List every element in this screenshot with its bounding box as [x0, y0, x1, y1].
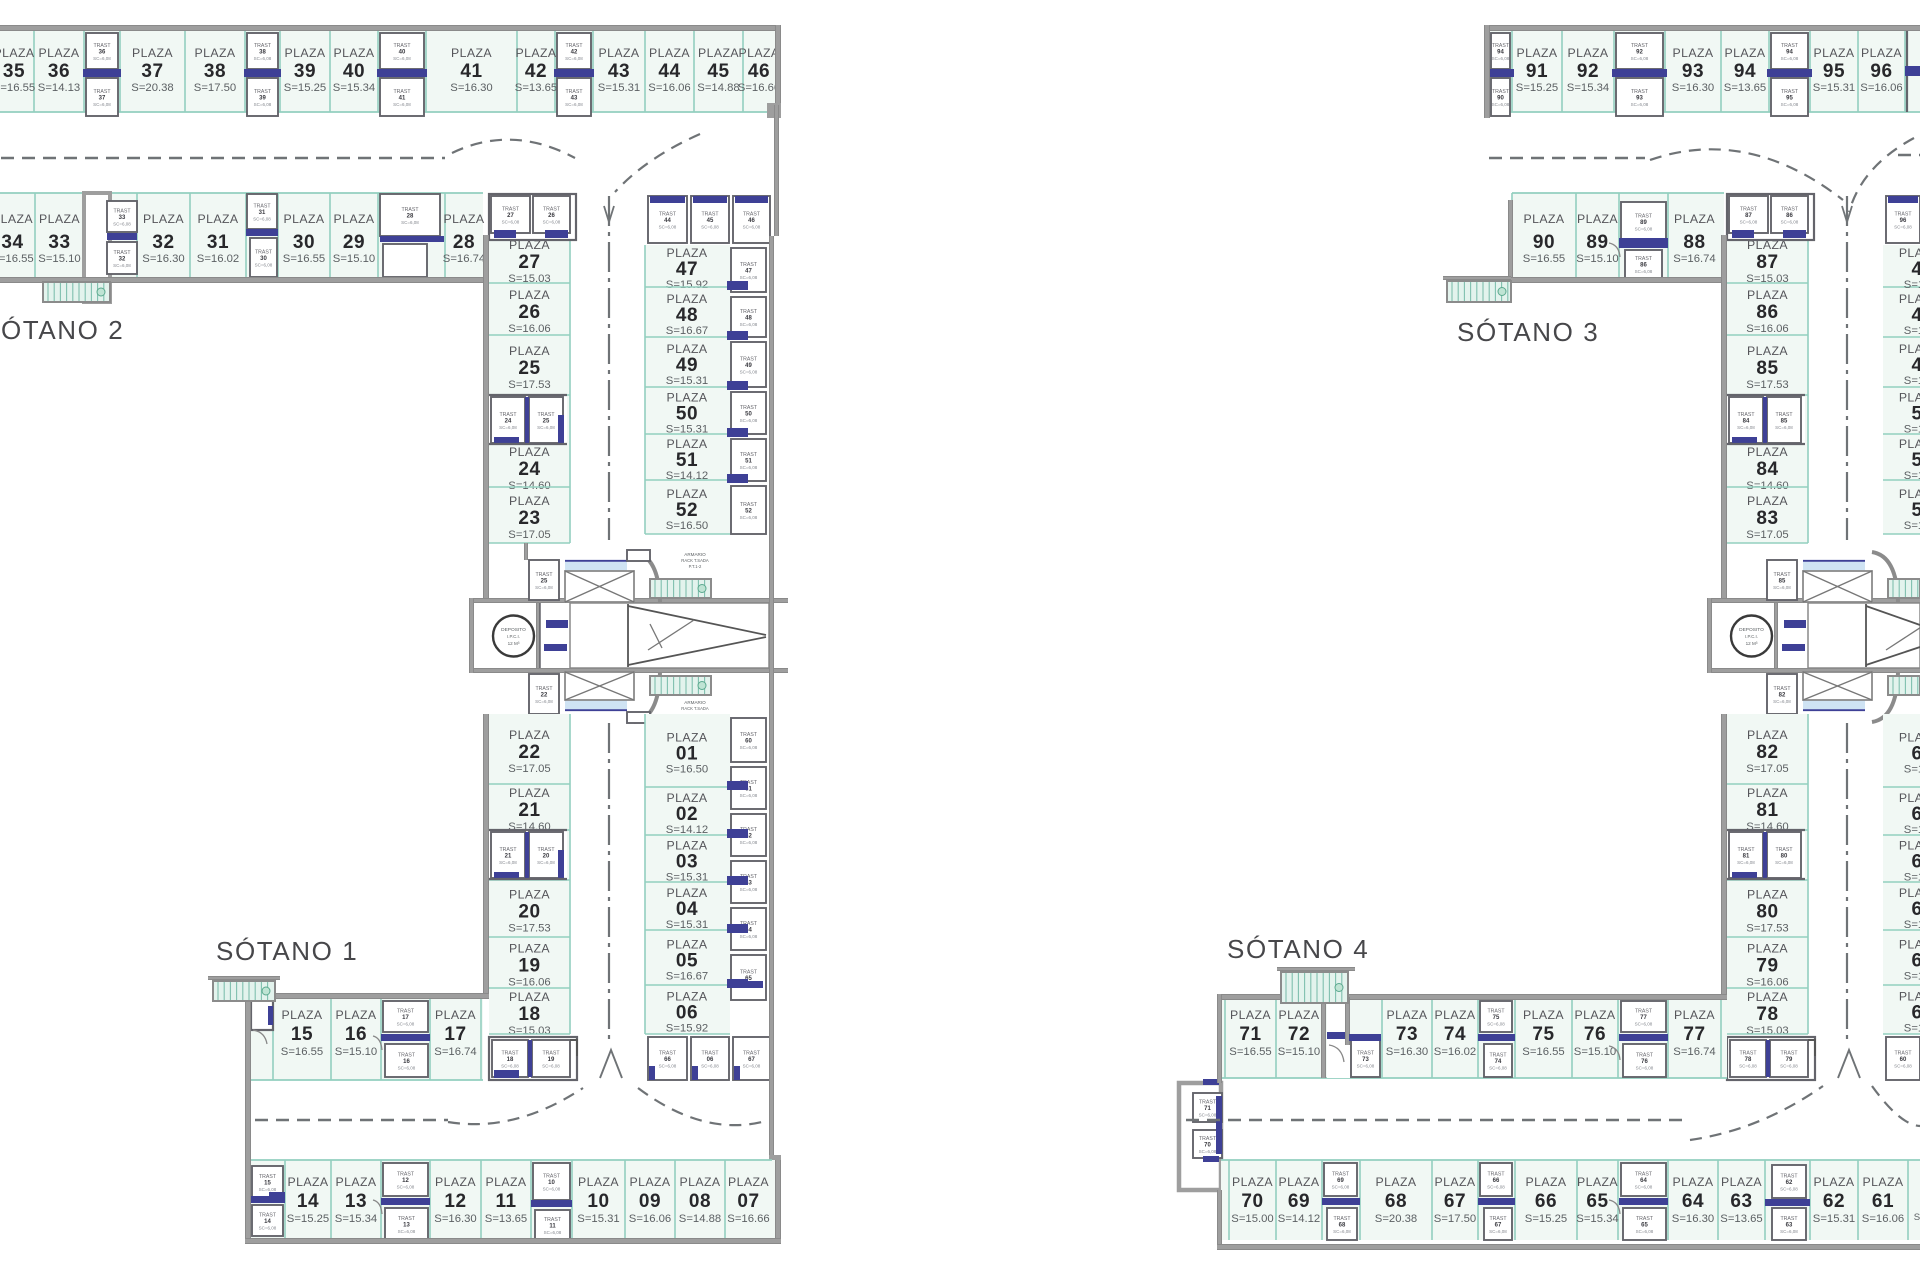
svg-text:08: 08 [689, 1191, 711, 1212]
svg-text:S=16.06: S=16.06 [508, 323, 550, 335]
svg-text:S=16.30: S=16.30 [1386, 1046, 1428, 1058]
svg-text:28: 28 [453, 232, 475, 253]
svg-text:TRAST: TRAST [502, 207, 520, 213]
svg-text:SC=6,08: SC=6,08 [743, 225, 761, 230]
svg-text:S=17.05: S=17.05 [1746, 529, 1788, 541]
svg-text:39: 39 [259, 96, 266, 102]
svg-text:SC=6,08: SC=6,08 [255, 263, 273, 268]
svg-text:TRAST: TRAST [537, 847, 555, 853]
svg-text:TRAST: TRAST [740, 732, 758, 738]
svg-text:SC=6,08: SC=6,08 [659, 225, 677, 230]
svg-text:PLAZA: PLAZA [284, 212, 325, 226]
svg-text:35: 35 [3, 61, 25, 82]
svg-text:SC=6,08: SC=6,08 [1737, 860, 1755, 865]
svg-text:S=1: S=1 [1904, 872, 1920, 884]
svg-text:PLAZA: PLAZA [680, 1175, 721, 1189]
svg-text:S=1: S=1 [1904, 764, 1920, 776]
svg-text:TRAST: TRAST [1631, 43, 1649, 49]
svg-text:S=15.34: S=15.34 [1576, 1213, 1618, 1225]
svg-text:S=15.25: S=15.25 [1525, 1213, 1567, 1225]
svg-text:25: 25 [518, 358, 540, 379]
svg-text:S=15.31: S=15.31 [1813, 1213, 1855, 1225]
svg-text:PLAZA: PLAZA [667, 990, 708, 1004]
svg-text:S=17.05: S=17.05 [508, 529, 550, 541]
svg-text:SC=6,08: SC=6,08 [740, 793, 758, 798]
svg-text:PLAZA: PLAZA [509, 888, 550, 902]
svg-text:TRAST: TRAST [659, 1051, 677, 1057]
svg-text:PLAZ: PLAZ [1899, 990, 1920, 1004]
svg-text:SC=6,08: SC=6,08 [543, 1187, 561, 1192]
svg-text:PLAZA: PLAZA [1376, 1175, 1417, 1189]
svg-text:S=15.03: S=15.03 [1746, 1025, 1788, 1037]
svg-text:I.P.C.I.: I.P.C.I. [1745, 634, 1758, 639]
svg-text:6: 6 [1911, 804, 1920, 825]
svg-text:90: 90 [1497, 96, 1504, 102]
svg-text:PLAZ: PLAZ [1899, 292, 1920, 306]
svg-text:SC=6,08: SC=6,08 [397, 1185, 415, 1190]
svg-text:TRAST: TRAST [740, 502, 758, 508]
svg-text:TRAST: TRAST [740, 405, 758, 411]
svg-text:PLAZA: PLAZA [1721, 1175, 1762, 1189]
svg-text:DEPOSITO: DEPOSITO [501, 627, 526, 633]
svg-text:TRAST: TRAST [397, 1009, 415, 1015]
svg-text:TRAST: TRAST [1199, 1100, 1217, 1106]
svg-text:S=17.53: S=17.53 [1746, 923, 1788, 935]
svg-text:5: 5 [1911, 500, 1920, 521]
svg-text:S=20.38: S=20.38 [1375, 1213, 1417, 1225]
svg-text:85: 85 [1756, 358, 1778, 379]
svg-text:SC=6,08: SC=6,08 [537, 425, 555, 430]
svg-text:SC=6,08: SC=6,08 [543, 220, 561, 225]
svg-text:PLAZA: PLAZA [739, 46, 780, 60]
svg-text:SC=6,08: SC=6,08 [537, 860, 555, 865]
svg-text:TRAST: TRAST [1487, 1009, 1505, 1015]
svg-text:SC=6,08: SC=6,08 [1357, 1064, 1375, 1069]
svg-text:PLAZA: PLAZA [336, 1008, 377, 1022]
svg-text:TRAST: TRAST [743, 1051, 761, 1057]
svg-text:06: 06 [707, 1057, 714, 1063]
svg-text:S=17.05: S=17.05 [508, 763, 550, 775]
svg-text:SC=6,08: SC=6,08 [393, 56, 411, 61]
svg-text:PLAZA: PLAZA [1279, 1175, 1320, 1189]
svg-text:PLAZA: PLAZA [1575, 1008, 1616, 1022]
svg-text:S=15.31: S=15.31 [1813, 82, 1855, 94]
svg-text:TRAST: TRAST [1739, 1051, 1757, 1057]
svg-text:47: 47 [676, 259, 698, 280]
svg-text:PLAZA: PLAZA [667, 791, 708, 805]
svg-text:89: 89 [1586, 232, 1608, 253]
svg-text:51: 51 [745, 459, 752, 465]
svg-text:TRAST: TRAST [93, 43, 111, 49]
svg-text:S=16.55: S=16.55 [0, 82, 35, 94]
svg-text:TRAST: TRAST [1636, 1216, 1654, 1222]
svg-text:PLAZA: PLAZA [1725, 46, 1766, 60]
svg-text:SC=6,08: SC=6,08 [1739, 1064, 1757, 1069]
svg-text:SC=6,08: SC=6,08 [740, 370, 758, 375]
svg-text:SC=6,08: SC=6,08 [1199, 1149, 1217, 1154]
svg-text:TRAST: TRAST [113, 250, 131, 256]
svg-text:S=15.03: S=15.03 [508, 1025, 550, 1037]
svg-text:SC=6,08: SC=6,08 [1780, 1187, 1798, 1192]
svg-text:S=16.30: S=16.30 [450, 82, 492, 94]
svg-text:25: 25 [543, 419, 550, 425]
svg-text:30: 30 [293, 232, 315, 253]
svg-text:SC=6,08: SC=6,08 [499, 860, 517, 865]
svg-text:SC=6,08: SC=6,08 [499, 425, 517, 430]
svg-text:SC=6,08: SC=6,08 [1635, 269, 1653, 274]
svg-text:S=16.67: S=16.67 [666, 325, 708, 337]
svg-text:PLAZA: PLAZA [198, 212, 239, 226]
svg-text:PLAZA: PLAZA [1747, 728, 1788, 742]
svg-text:PLAZA: PLAZA [0, 212, 33, 226]
svg-text:PLAZA: PLAZA [509, 344, 550, 358]
svg-text:S=16.55: S=16.55 [1229, 1046, 1271, 1058]
svg-text:96: 96 [1870, 61, 1892, 82]
svg-text:S=1: S=1 [1904, 520, 1920, 532]
svg-text:SC=6,08: SC=6,08 [1489, 1066, 1507, 1071]
svg-text:S=16.06: S=16.06 [629, 1213, 671, 1225]
svg-text:42: 42 [525, 61, 547, 82]
svg-text:S=13.65: S=13.65 [515, 82, 557, 94]
svg-text:SC=6,08: SC=6,08 [1894, 1064, 1912, 1069]
svg-text:S=15.25: S=15.25 [1516, 82, 1558, 94]
svg-text:27: 27 [518, 252, 540, 273]
svg-text:PLAZ: PLAZ [1899, 886, 1920, 900]
svg-text:79: 79 [1756, 956, 1778, 977]
svg-text:25: 25 [541, 579, 548, 585]
svg-text:68: 68 [1385, 1191, 1407, 1212]
svg-text:PLAZA: PLAZA [1863, 1175, 1904, 1189]
svg-text:PLAZA: PLAZA [667, 839, 708, 853]
svg-text:S=15.10: S=15.10 [38, 253, 80, 265]
svg-text:S=1: S=1 [1904, 424, 1920, 436]
svg-text:SC=6,08: SC=6,08 [740, 745, 758, 750]
svg-text:16: 16 [403, 1059, 410, 1065]
svg-text:TRAST: TRAST [1332, 1172, 1350, 1178]
svg-text:TRAST: TRAST [544, 1217, 562, 1223]
svg-text:PLAZA: PLAZA [509, 494, 550, 508]
svg-text:I.P.C.I.: I.P.C.I. [507, 634, 520, 639]
svg-text:63: 63 [1786, 1223, 1793, 1229]
svg-text:TRAST: TRAST [565, 43, 583, 49]
svg-text:5: 5 [1911, 404, 1920, 425]
svg-text:20: 20 [543, 854, 550, 860]
svg-text:5: 5 [1911, 450, 1920, 471]
svg-text:SC=6,08: SC=6,08 [254, 56, 272, 61]
svg-text:TRAST: TRAST [501, 1051, 519, 1057]
svg-text:TRAST: TRAST [255, 250, 273, 256]
svg-text:PLAZA: PLAZA [282, 1008, 323, 1022]
svg-text:62: 62 [1786, 1180, 1793, 1186]
svg-text:33: 33 [48, 232, 70, 253]
svg-text:SC=6,08: SC=6,08 [1773, 585, 1791, 590]
svg-text:63: 63 [1730, 1191, 1752, 1212]
svg-text:TRAST: TRAST [543, 207, 561, 213]
svg-text:69: 69 [1337, 1178, 1344, 1184]
svg-text:45: 45 [707, 218, 714, 224]
svg-text:SC=6,08: SC=6,08 [397, 1022, 415, 1027]
svg-text:PLAZA: PLAZA [1747, 942, 1788, 956]
svg-text:SC=6,08: SC=6,08 [1631, 102, 1649, 107]
svg-text:12: 12 [444, 1191, 466, 1212]
svg-text:TRAST: TRAST [259, 1213, 277, 1219]
svg-text:S=14.88: S=14.88 [697, 82, 739, 94]
svg-text:TRAST: TRAST [1489, 1216, 1507, 1222]
svg-text:PLAZA: PLAZA [39, 212, 80, 226]
svg-text:DEPOSITO: DEPOSITO [1739, 627, 1764, 633]
svg-text:TRAST: TRAST [1775, 847, 1793, 853]
svg-text:10: 10 [548, 1180, 555, 1186]
svg-text:86: 86 [1756, 302, 1778, 323]
svg-text:SC=6,08: SC=6,08 [544, 1230, 562, 1235]
svg-text:30: 30 [260, 256, 267, 262]
svg-text:PLAZA: PLAZA [1577, 1175, 1618, 1189]
svg-text:S=16.06: S=16.06 [1862, 1213, 1904, 1225]
svg-text:69: 69 [1288, 1191, 1310, 1212]
svg-text:85: 85 [1781, 419, 1788, 425]
svg-text:45: 45 [707, 61, 729, 82]
svg-text:50: 50 [676, 404, 698, 425]
svg-text:SC=6,08: SC=6,08 [535, 699, 553, 704]
svg-text:SC=6,08: SC=6,08 [1332, 1185, 1350, 1190]
svg-text:PLAZA: PLAZA [599, 46, 640, 60]
svg-text:S=15.10: S=15.10 [1576, 253, 1618, 265]
svg-text:S=16.55: S=16.55 [0, 253, 34, 265]
svg-text:SC=6,08: SC=6,08 [565, 102, 583, 107]
svg-text:TRAST: TRAST [740, 452, 758, 458]
svg-text:PLAZA: PLAZA [667, 731, 708, 745]
svg-text:S=16.30: S=16.30 [1672, 82, 1714, 94]
svg-text:PLAZA: PLAZA [728, 1175, 769, 1189]
svg-text:90: 90 [1533, 232, 1555, 253]
svg-text:66: 66 [1535, 1191, 1557, 1212]
svg-text:91: 91 [1526, 61, 1548, 82]
svg-text:48: 48 [745, 316, 752, 322]
svg-text:03: 03 [676, 852, 698, 873]
svg-text:20: 20 [518, 902, 540, 923]
svg-text:62: 62 [1823, 1191, 1845, 1212]
svg-text:S=17.53: S=17.53 [508, 923, 550, 935]
svg-text:S=15.25: S=15.25 [287, 1213, 329, 1225]
svg-text:PLAZA: PLAZA [1747, 494, 1788, 508]
svg-text:TRAST: TRAST [1199, 1136, 1217, 1142]
svg-text:SÓTANO 3: SÓTANO 3 [1457, 317, 1599, 347]
svg-text:TRAST: TRAST [1333, 1216, 1351, 1222]
svg-text:47: 47 [745, 269, 752, 275]
svg-text:SC=6,08: SC=6,08 [1780, 1064, 1798, 1069]
svg-text:87: 87 [1745, 213, 1752, 219]
svg-text:SC=6,08: SC=6,08 [259, 1187, 277, 1192]
svg-text:94: 94 [1734, 61, 1756, 82]
svg-text:72: 72 [1288, 1024, 1310, 1045]
svg-text:PLAZA: PLAZA [667, 437, 708, 451]
svg-text:PLAZ: PLAZ [1899, 391, 1920, 405]
svg-text:19: 19 [548, 1057, 555, 1063]
svg-text:66: 66 [664, 1057, 671, 1063]
svg-text:PLAZA: PLAZA [509, 942, 550, 956]
svg-text:S=14.12: S=14.12 [1278, 1213, 1320, 1225]
svg-text:93: 93 [1682, 61, 1704, 82]
svg-text:PLAZA: PLAZA [1814, 46, 1855, 60]
svg-text:94: 94 [1786, 50, 1793, 56]
svg-text:18: 18 [507, 1057, 514, 1063]
svg-text:22: 22 [518, 742, 540, 763]
svg-text:74: 74 [1495, 1059, 1502, 1065]
svg-text:S=16.06: S=16.06 [1746, 977, 1788, 989]
svg-text:29: 29 [343, 232, 365, 253]
svg-text:S=16.67: S=16.67 [666, 971, 708, 983]
svg-text:SC=6,08: SC=6,08 [740, 465, 758, 470]
svg-text:09: 09 [639, 1191, 661, 1212]
svg-text:01: 01 [676, 744, 698, 765]
svg-text:SC=6,08: SC=6,08 [740, 887, 758, 892]
svg-text:PLAZA: PLAZA [334, 212, 375, 226]
svg-text:S: S [1914, 1212, 1920, 1223]
svg-text:S=16.74: S=16.74 [434, 1046, 476, 1058]
svg-text:6: 6 [1911, 1003, 1920, 1024]
svg-text:TRAST: TRAST [740, 357, 758, 363]
svg-text:12 M³: 12 M³ [508, 641, 520, 646]
svg-text:SC=6,08: SC=6,08 [1737, 425, 1755, 430]
svg-text:37: 37 [141, 61, 163, 82]
svg-text:S=15.10: S=15.10 [1574, 1046, 1616, 1058]
svg-text:S=14.13: S=14.13 [38, 82, 80, 94]
svg-text:94: 94 [1497, 50, 1504, 56]
svg-text:SC=6,08: SC=6,08 [398, 1066, 416, 1071]
svg-text:PLAZA: PLAZA [667, 246, 708, 260]
svg-text:26: 26 [518, 302, 540, 323]
svg-text:4: 4 [1911, 259, 1920, 280]
svg-text:S=15.10: S=15.10 [333, 253, 375, 265]
svg-text:S=15.31: S=15.31 [666, 375, 708, 387]
svg-text:S=13.65: S=13.65 [485, 1213, 527, 1225]
svg-text:TRAST: TRAST [1635, 1172, 1653, 1178]
svg-text:PLAZA: PLAZA [516, 46, 557, 60]
svg-text:66: 66 [1493, 1178, 1500, 1184]
svg-text:S=17.50: S=17.50 [194, 82, 236, 94]
svg-text:18: 18 [518, 1004, 540, 1025]
svg-text:TRAST: TRAST [537, 412, 555, 418]
svg-text:96: 96 [1900, 218, 1907, 224]
svg-text:PLAZA: PLAZA [1232, 1175, 1273, 1189]
svg-text:13: 13 [345, 1191, 367, 1212]
svg-text:PLAZA: PLAZA [451, 46, 492, 60]
svg-text:78: 78 [1756, 1004, 1778, 1025]
svg-text:S=16.50: S=16.50 [666, 764, 708, 776]
svg-text:ARMARIO: ARMARIO [684, 700, 706, 705]
svg-text:S=16.55: S=16.55 [283, 253, 325, 265]
svg-text:TRAST: TRAST [535, 572, 553, 578]
svg-text:92: 92 [1577, 61, 1599, 82]
svg-text:S=16.55: S=16.55 [1523, 253, 1565, 265]
svg-text:85: 85 [1779, 579, 1786, 585]
svg-text:RACK T.SADA: RACK T.SADA [681, 706, 709, 711]
svg-text:41: 41 [460, 61, 482, 82]
svg-text:42: 42 [571, 50, 578, 56]
svg-text:TRAST: TRAST [1781, 207, 1799, 213]
svg-text:PLAZ: PLAZ [1899, 731, 1920, 745]
svg-text:11: 11 [495, 1191, 516, 1212]
svg-text:PLAZA: PLAZA [1230, 1008, 1271, 1022]
svg-text:TRAST: TRAST [254, 89, 272, 95]
svg-text:52: 52 [676, 500, 698, 521]
svg-text:84: 84 [1743, 419, 1750, 425]
svg-text:PLAZA: PLAZA [509, 728, 550, 742]
svg-text:43: 43 [571, 96, 578, 102]
svg-text:26: 26 [548, 213, 555, 219]
svg-text:SC=6,08: SC=6,08 [535, 585, 553, 590]
svg-text:SC=6,08: SC=6,08 [740, 515, 758, 520]
svg-text:S=14.60: S=14.60 [508, 480, 550, 492]
svg-text:TRAST: TRAST [740, 262, 758, 268]
svg-text:TRAST: TRAST [393, 89, 411, 95]
svg-text:PLAZA: PLAZA [1747, 990, 1788, 1004]
svg-text:PLAZA: PLAZA [435, 1175, 476, 1189]
svg-text:SC=6,08: SC=6,08 [393, 102, 411, 107]
svg-text:PLAZA: PLAZA [1279, 1008, 1320, 1022]
svg-text:78: 78 [1745, 1057, 1752, 1063]
svg-text:PLAZA: PLAZA [195, 46, 236, 60]
svg-text:S=16.55: S=16.55 [281, 1046, 323, 1058]
svg-text:S=20.38: S=20.38 [131, 82, 173, 94]
svg-text:TRAST: TRAST [398, 1053, 416, 1059]
svg-text:81: 81 [1743, 854, 1750, 860]
svg-text:21: 21 [518, 800, 540, 821]
svg-text:23: 23 [518, 508, 540, 529]
svg-text:S=16.02: S=16.02 [197, 253, 239, 265]
svg-text:SC=6,08: SC=6,08 [502, 220, 520, 225]
svg-text:TRAST: TRAST [659, 212, 677, 218]
svg-text:SC=6,08: SC=6,08 [1781, 220, 1799, 225]
svg-text:SC=6,08: SC=6,08 [398, 1229, 416, 1234]
svg-text:40: 40 [399, 50, 406, 56]
svg-text:PLAZA: PLAZA [1568, 46, 1609, 60]
svg-text:44: 44 [658, 61, 680, 82]
svg-text:S=13.65: S=13.65 [1724, 82, 1766, 94]
svg-text:32: 32 [119, 257, 126, 263]
svg-text:SC=6,08: SC=6,08 [1894, 225, 1912, 230]
svg-text:TRAST: TRAST [1737, 412, 1755, 418]
svg-text:S=1: S=1 [1904, 1023, 1920, 1035]
svg-text:71: 71 [1204, 1106, 1211, 1112]
svg-text:S=15.92: S=15.92 [666, 279, 708, 291]
svg-text:TRAST: TRAST [543, 1174, 561, 1180]
svg-text:S=15.34: S=15.34 [1567, 82, 1609, 94]
svg-text:TRAST: TRAST [1781, 89, 1799, 95]
svg-text:TRAST: TRAST [565, 89, 583, 95]
svg-text:S=15.31: S=15.31 [598, 82, 640, 94]
svg-text:24: 24 [505, 419, 512, 425]
svg-text:TRAST: TRAST [701, 1051, 719, 1057]
svg-text:77: 77 [1640, 1015, 1647, 1021]
svg-text:S=16.50: S=16.50 [666, 520, 708, 532]
svg-text:SC=6,08: SC=6,08 [1773, 699, 1791, 704]
svg-text:TRAST: TRAST [542, 1051, 560, 1057]
svg-text:SC=6,08: SC=6,08 [93, 56, 111, 61]
svg-text:93: 93 [1636, 96, 1643, 102]
svg-text:SC=6,08: SC=6,08 [1489, 1229, 1507, 1234]
svg-text:82: 82 [1756, 742, 1778, 763]
svg-text:50: 50 [745, 412, 752, 418]
svg-text:38: 38 [204, 61, 226, 82]
svg-text:PLAZ: PLAZ [1899, 791, 1920, 805]
svg-text:RACK T.SADA: RACK T.SADA [681, 558, 709, 563]
svg-text:37: 37 [99, 96, 106, 102]
svg-text:80: 80 [1756, 902, 1778, 923]
svg-text:PLAZA: PLAZA [1814, 1175, 1855, 1189]
svg-text:PLAZA: PLAZA [667, 391, 708, 405]
svg-text:TRAST: TRAST [1631, 89, 1649, 95]
